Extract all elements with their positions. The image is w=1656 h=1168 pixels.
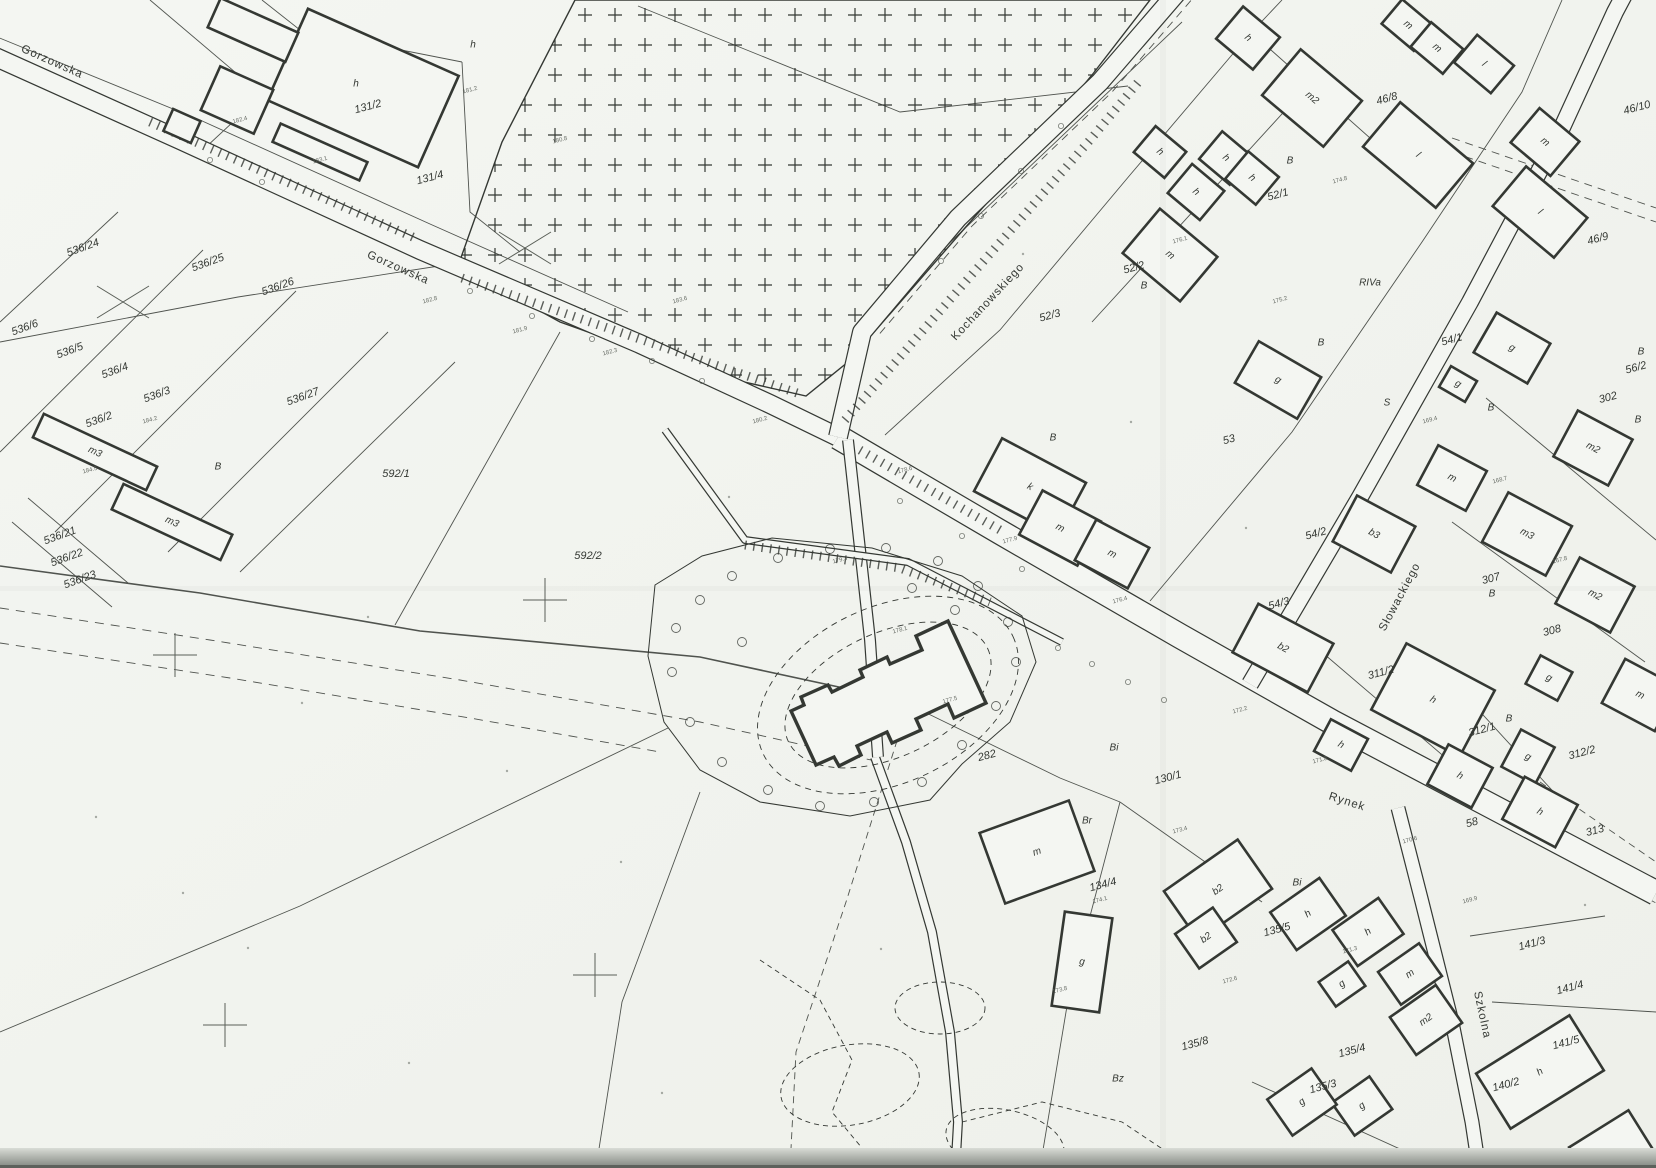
land-use-letter-label: Br xyxy=(1082,816,1093,827)
scan-speck xyxy=(661,1092,663,1094)
land-use-letter-label: h xyxy=(470,40,476,51)
land-use-letter-label: B xyxy=(1318,338,1325,349)
map-canvas: m3m3mmlm2lmlhhhhhmkmmgggmb3m3m2m2b2mhhhg… xyxy=(0,0,1656,1168)
scan-speck xyxy=(301,702,303,704)
scan-speck xyxy=(367,616,369,618)
land-use-letter-label: B xyxy=(1050,433,1057,444)
land-use-letter-label: B xyxy=(1141,281,1148,292)
land-use-letter-label: B xyxy=(1488,403,1495,414)
scan-speck xyxy=(182,892,184,894)
scan-speck xyxy=(95,816,97,818)
scan-speck xyxy=(728,496,730,498)
vertical-fold-seam xyxy=(1160,0,1166,1168)
scan-speck xyxy=(620,861,622,863)
land-use-letter-label: B xyxy=(215,462,222,473)
cadastral-map-scan: m3m3mmlm2lmlhhhhhmkmmgggmb3m3m2m2b2mhhhg… xyxy=(0,0,1656,1168)
land-use-letter-label: Bz xyxy=(1112,1074,1124,1085)
scan-speck xyxy=(506,770,508,772)
land-use-letter-label: B xyxy=(1635,415,1642,426)
horizontal-fold-crease xyxy=(0,586,1656,591)
parcel-number-label: 592/2 xyxy=(574,550,602,562)
land-use-letter-label: Bi xyxy=(1293,878,1303,889)
land-use-letter-label: Bi xyxy=(1110,743,1120,754)
scan-speck xyxy=(1245,527,1247,529)
scan-speck xyxy=(1584,904,1586,906)
land-use-letter-label: B xyxy=(1287,156,1294,167)
scan-speck xyxy=(880,948,882,950)
scan-speck xyxy=(1022,253,1024,255)
scan-speck xyxy=(408,1062,410,1064)
parcel-number-label: 592/1 xyxy=(382,468,410,480)
land-use-letter-label: h xyxy=(353,79,359,90)
scan-speck xyxy=(247,947,249,949)
land-use-letter-label: B xyxy=(1638,347,1645,358)
land-use-letter-label: B xyxy=(1506,714,1513,725)
land-use-letter-label: S xyxy=(1384,398,1391,409)
land-use-letter-label: RIVa xyxy=(1359,278,1381,289)
scan-speck xyxy=(1130,421,1132,423)
